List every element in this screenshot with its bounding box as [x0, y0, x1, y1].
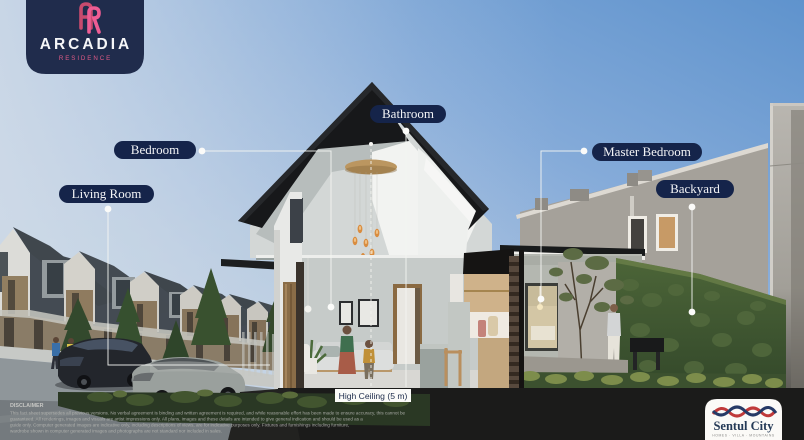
- svg-text:High Ceiling (5 m): High Ceiling (5 m): [339, 391, 408, 401]
- svg-text:Sentul City: Sentul City: [713, 419, 774, 433]
- svg-text:DISCLAIMER: DISCLAIMER: [10, 403, 44, 409]
- svg-text:wardrobe shown in computer gen: wardrobe shown in computer generated ima…: [10, 429, 222, 434]
- svg-text:Bedroom: Bedroom: [131, 142, 179, 157]
- svg-text:Bathroom: Bathroom: [382, 106, 434, 121]
- svg-text:guide only. Computer generated: guide only. Computer generated images ar…: [10, 423, 349, 428]
- svg-text:This fact sheet supersedes all: This fact sheet supersedes all previous …: [10, 411, 406, 416]
- svg-text:HOMES · VILLA · MOUNTAINS: HOMES · VILLA · MOUNTAINS: [712, 434, 775, 438]
- svg-text:ARCADIA: ARCADIA: [40, 36, 132, 53]
- svg-text:Living Room: Living Room: [72, 186, 142, 201]
- svg-text:Master Bedroom: Master Bedroom: [603, 144, 691, 159]
- svg-text:RESIDENCE: RESIDENCE: [59, 55, 112, 62]
- svg-text:Backyard: Backyard: [670, 181, 720, 196]
- svg-text:guaranteed. All renderings, im: guaranteed. All renderings, images and v…: [10, 417, 363, 422]
